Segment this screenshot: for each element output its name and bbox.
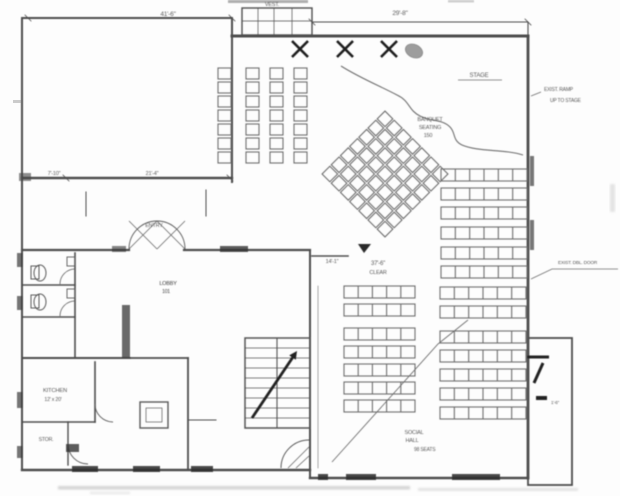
dim-left-wall-2: 21'-4" [146, 171, 159, 177]
social-label-1: SOCIAL [405, 430, 424, 436]
storage-threshold [66, 444, 79, 452]
seating-label-3: 150 [424, 133, 433, 139]
right-edge-smudge [610, 184, 615, 212]
lobby-label-2: 101 [162, 289, 170, 295]
ramp-note: 1'-6" [551, 400, 560, 405]
threshold-dash-1 [220, 246, 248, 252]
scan-edge-mark-2 [448, 0, 474, 3]
social-label-2: HALL [406, 438, 419, 444]
stage-label: STAGE [470, 73, 489, 79]
wall-jamb-2 [530, 220, 534, 250]
hall-clear-1: 37'-6" [371, 261, 385, 267]
bottom-smudge-1 [58, 486, 410, 490]
ramp-mark-3 [536, 396, 547, 400]
bottom-smudge-2 [418, 488, 578, 491]
window-dash-5 [346, 474, 376, 480]
dim-top-left: 41'-6" [160, 11, 176, 18]
note-stage-right-2: UP TO STAGE [550, 98, 582, 104]
vestibule-label: VEST. [265, 2, 280, 8]
entry-label: ENTRY [145, 223, 163, 229]
window-dash-6 [452, 474, 500, 480]
pilaster-3 [17, 392, 23, 408]
floor-plan-scan: 41'-6"29'-8"VEST.STAGEEXIST. RAMPUP TO S… [0, 0, 620, 496]
pilaster-2 [17, 296, 23, 310]
note-stage-right-1: EXIST. RAMP [544, 87, 574, 93]
pilaster-1 [17, 253, 23, 267]
seating-label-2: SEATING [419, 125, 441, 131]
window-dash-1 [72, 466, 98, 472]
dim-hall-top: 14'-1" [326, 259, 339, 265]
window-dash-2 [133, 466, 160, 472]
floor-plan-canvas: 41'-6"29'-8"VEST.STAGEEXIST. RAMPUP TO S… [0, 0, 620, 496]
social-label-3: 98 SEATS [414, 447, 436, 453]
filled-wall-segment [122, 305, 130, 358]
lobby-label-1: LOBBY [159, 281, 177, 287]
left-dim-tick [13, 100, 21, 103]
storage-label: STOR. [39, 437, 54, 443]
seating-label-1: BANQUET [417, 117, 443, 123]
dim-top-right: 29'-8" [392, 10, 408, 17]
note-door-right: EXIST. DBL. DOOR [558, 260, 598, 266]
threshold-dash-2 [112, 246, 126, 252]
window-dash-3 [191, 466, 213, 472]
pilaster-4 [17, 446, 23, 458]
hall-clear-2: CLEAR [369, 270, 387, 276]
wall-jamb-1 [530, 156, 534, 186]
kitchen-label-1: KITCHEN [43, 388, 67, 394]
kitchen-label-2: 12' x 20' [44, 397, 61, 403]
wall-junction-mark [19, 173, 31, 181]
bottom-smudge-3 [90, 492, 130, 494]
window-dash-4 [318, 474, 328, 480]
dim-left-wall-1: 7'-10" [48, 171, 61, 177]
